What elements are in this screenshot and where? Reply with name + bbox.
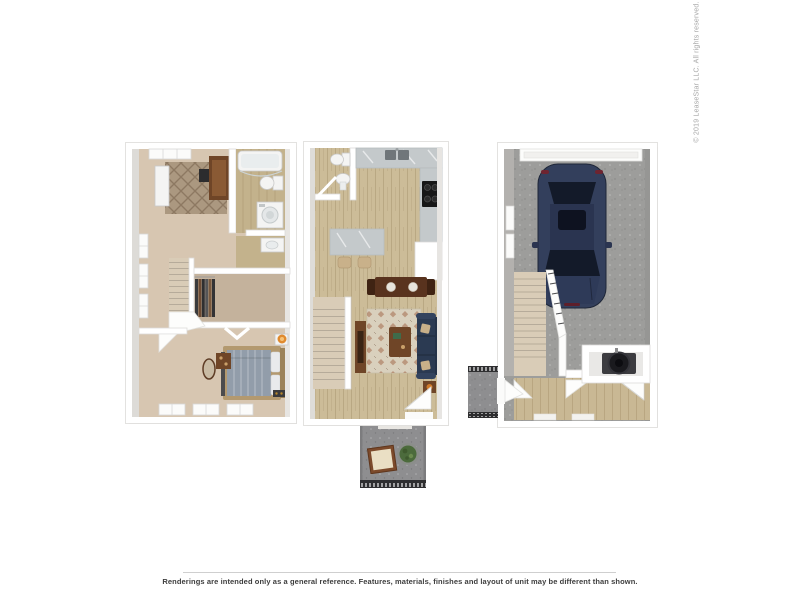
walk-in-closet [187, 268, 290, 338]
bedroom2 [149, 149, 229, 214]
toilet [331, 153, 351, 166]
floorplan-upper-level [125, 142, 297, 424]
washer [257, 202, 283, 228]
disclaimer-text: Renderings are intended only as a genera… [0, 577, 800, 586]
rear-window [548, 182, 596, 204]
side-mirror [532, 242, 539, 248]
desk-chair [199, 169, 209, 182]
stairs-down [313, 297, 351, 389]
garage-door [520, 149, 642, 161]
patio-table [367, 445, 396, 473]
coffee-table [389, 327, 411, 357]
sunroof [558, 210, 586, 230]
footer-divider [183, 572, 616, 573]
left-windows [139, 234, 148, 318]
stool [358, 257, 371, 268]
potted-plant [397, 443, 419, 465]
oval-mirror [203, 359, 215, 379]
nightstand [275, 334, 288, 345]
media-device [273, 390, 285, 397]
patio [360, 426, 426, 488]
toilet [260, 176, 283, 190]
dresser-white [155, 166, 169, 206]
window [149, 149, 191, 159]
utility-closet [582, 345, 650, 383]
taillight [595, 170, 603, 174]
floorplan-main-level [303, 141, 449, 426]
floorplan-garage-level [468, 142, 658, 428]
ottoman [216, 353, 231, 369]
vanity-area [236, 236, 285, 268]
stool [338, 257, 351, 268]
taillight [541, 170, 549, 174]
bottom-windows [159, 404, 253, 415]
bathroom [236, 149, 285, 233]
patio-railing [360, 480, 426, 488]
floorplan-sheet: Renderings are intended only as a genera… [0, 0, 800, 600]
stoop-door [497, 378, 505, 404]
entry-hall [514, 378, 650, 420]
side-mirror [605, 242, 612, 248]
dining-set [367, 277, 435, 297]
copyright-text: © 2019 LeaseStar LLC. All rights reserve… [694, 1, 701, 142]
